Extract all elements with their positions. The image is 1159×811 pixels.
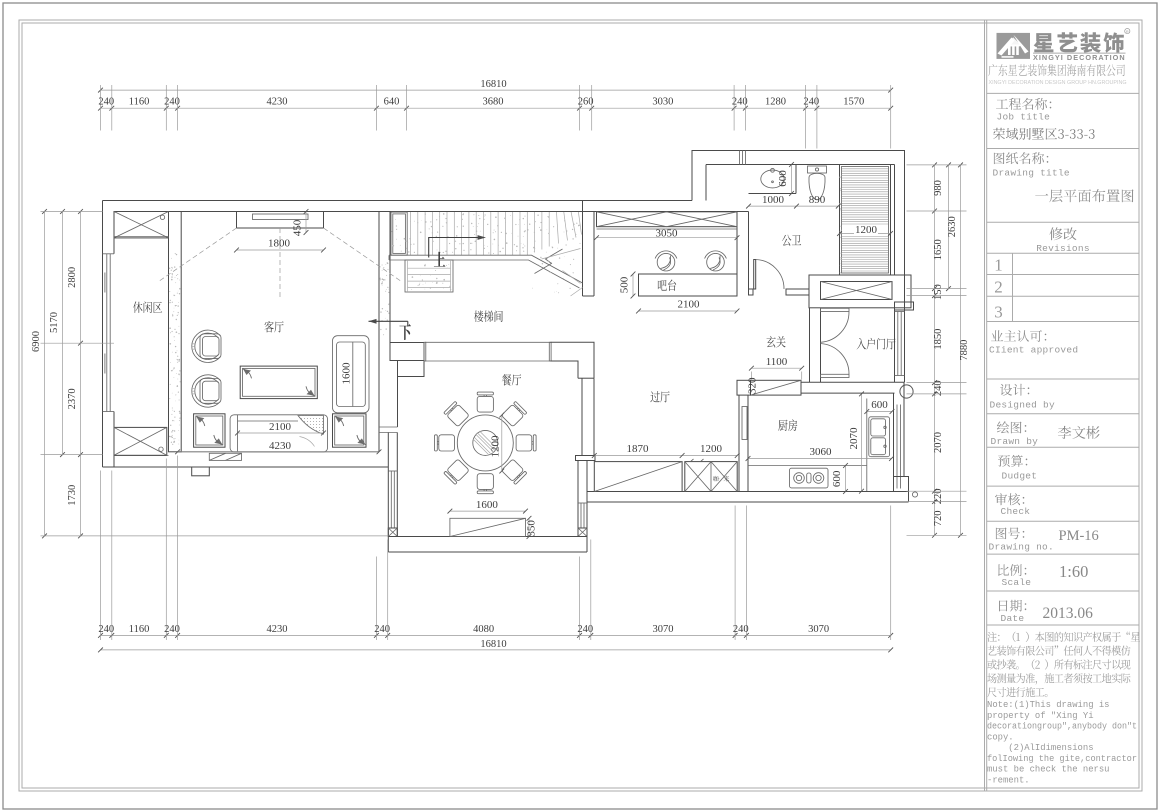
svg-text:4230: 4230 — [269, 440, 292, 452]
svg-text:600: 600 — [777, 170, 789, 187]
svg-text:1870: 1870 — [627, 443, 650, 455]
svg-text:Revisions: Revisions — [1036, 243, 1090, 254]
svg-text:4230: 4230 — [267, 97, 288, 108]
svg-text:1:60: 1:60 — [1059, 562, 1088, 581]
svg-text:240: 240 — [374, 624, 390, 635]
svg-text:600: 600 — [831, 470, 843, 487]
svg-text:3060: 3060 — [810, 446, 833, 458]
svg-text:Drawing no.: Drawing no. — [989, 542, 1054, 553]
svg-text:1160: 1160 — [129, 624, 150, 635]
svg-text:R: R — [1126, 30, 1129, 34]
svg-text:Note:(1)This drawing is: Note:(1)This drawing is — [987, 700, 1110, 710]
svg-text:7880: 7880 — [959, 340, 970, 361]
svg-text:1: 1 — [994, 256, 1003, 275]
svg-text:240: 240 — [98, 97, 114, 108]
svg-text:1000: 1000 — [762, 194, 785, 206]
svg-text:PM-16: PM-16 — [1059, 528, 1099, 544]
svg-text:2800: 2800 — [67, 267, 78, 288]
svg-text:240: 240 — [733, 624, 749, 635]
svg-text:XINGYI DECORATION DESIGN GROUP: XINGYI DECORATION DESIGN GROUP HN.GROUPI… — [989, 80, 1127, 86]
svg-text:1600: 1600 — [340, 362, 352, 385]
svg-text:890: 890 — [809, 194, 826, 206]
svg-text:(2)AlIdimensions: (2)AlIdimensions — [987, 743, 1094, 753]
svg-text:1850: 1850 — [933, 329, 944, 350]
svg-text:Date: Date — [1001, 613, 1025, 624]
svg-text:2070: 2070 — [848, 427, 860, 450]
svg-text:2070: 2070 — [933, 432, 944, 453]
svg-text:320: 320 — [746, 377, 758, 394]
svg-text:240: 240 — [732, 97, 748, 108]
svg-text:16810: 16810 — [480, 639, 506, 650]
svg-text:3070: 3070 — [808, 624, 829, 635]
svg-text:Drawing title: Drawing title — [993, 168, 1070, 179]
svg-text:240: 240 — [803, 97, 819, 108]
svg-text:450: 450 — [292, 219, 304, 236]
svg-text:6900: 6900 — [31, 331, 42, 352]
svg-text:3030: 3030 — [652, 97, 673, 108]
svg-text:600: 600 — [871, 399, 888, 411]
svg-text:260: 260 — [578, 97, 594, 108]
svg-text:240: 240 — [164, 624, 180, 635]
svg-text:CIient approved: CIient approved — [989, 345, 1078, 356]
svg-text:Job title: Job title — [997, 112, 1051, 123]
svg-text:1160: 1160 — [129, 97, 150, 108]
svg-text:2370: 2370 — [67, 388, 78, 409]
svg-text:Dudget: Dudget — [1002, 471, 1038, 482]
svg-text:property of ″Xing Yi: property of ″Xing Yi — [987, 711, 1094, 721]
svg-text:2: 2 — [994, 278, 1003, 297]
svg-text:1100: 1100 — [766, 356, 788, 368]
svg-text:980: 980 — [933, 180, 944, 196]
svg-text:Designed by: Designed by — [990, 400, 1056, 411]
svg-text:1800: 1800 — [268, 238, 291, 250]
svg-text:2100: 2100 — [678, 299, 701, 311]
svg-text:3070: 3070 — [653, 624, 674, 635]
svg-text:16810: 16810 — [480, 79, 506, 90]
svg-text:2630: 2630 — [947, 216, 958, 237]
svg-text:350: 350 — [526, 520, 538, 537]
svg-text:5170: 5170 — [49, 312, 60, 333]
svg-text:1200: 1200 — [489, 435, 501, 458]
svg-text:2100: 2100 — [269, 421, 292, 433]
svg-text:1280: 1280 — [765, 97, 786, 108]
svg-text:folIowing the gite,contractor: folIowing the gite,contractor — [987, 754, 1137, 764]
svg-text:decorationgroup″,anybody don″t: decorationgroup″,anybody don″t — [987, 722, 1137, 732]
svg-text:1200: 1200 — [700, 443, 723, 455]
svg-text:720: 720 — [933, 511, 944, 527]
svg-text:1730: 1730 — [67, 485, 78, 506]
svg-text:3050: 3050 — [656, 228, 679, 240]
svg-text:-rement.: -rement. — [987, 775, 1030, 785]
svg-text:240: 240 — [98, 624, 114, 635]
svg-text:500: 500 — [619, 276, 631, 293]
svg-text:Check: Check — [1001, 506, 1031, 517]
svg-text:240: 240 — [164, 97, 180, 108]
svg-text:3680: 3680 — [483, 97, 504, 108]
svg-text:4080: 4080 — [473, 624, 494, 635]
svg-text:640: 640 — [384, 97, 400, 108]
svg-text:Scale: Scale — [1002, 577, 1032, 588]
svg-text:3: 3 — [994, 303, 1003, 322]
svg-text:1200: 1200 — [855, 224, 878, 236]
svg-text:copy.: copy. — [987, 732, 1014, 742]
svg-text:1570: 1570 — [843, 97, 864, 108]
svg-text:2013.06: 2013.06 — [1043, 605, 1094, 622]
svg-text:1600: 1600 — [476, 499, 499, 511]
svg-text:150: 150 — [933, 284, 944, 300]
svg-text:4230: 4230 — [267, 624, 288, 635]
svg-text:1650: 1650 — [933, 239, 944, 260]
svg-text:XINGYI DECORATION: XINGYI DECORATION — [1033, 53, 1126, 62]
svg-text:240: 240 — [577, 624, 593, 635]
svg-text:Drawn by: Drawn by — [991, 436, 1039, 447]
svg-text:must be check the nersu: must be check the nersu — [987, 765, 1110, 775]
